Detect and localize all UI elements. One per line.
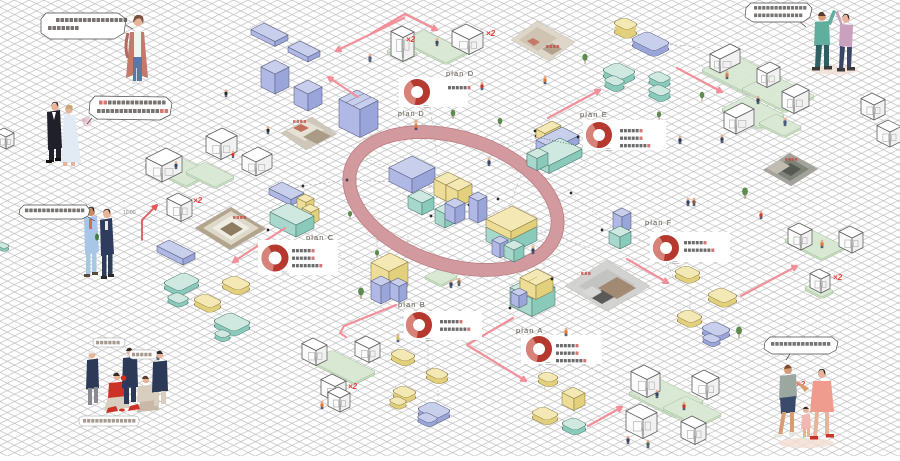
svg-text:×2: ×2 xyxy=(833,273,843,282)
svg-text:plan B: plan B xyxy=(398,300,426,309)
svg-text:×2: ×2 xyxy=(406,35,416,44)
svg-text:plan F: plan F xyxy=(645,218,672,227)
svg-text:plan D: plan D xyxy=(398,111,425,118)
svg-text:plan A: plan A xyxy=(516,326,543,335)
svg-text:×2: ×2 xyxy=(348,382,358,391)
svg-text:plan E: plan E xyxy=(580,110,608,119)
svg-text:plan D: plan D xyxy=(446,69,474,78)
svg-text:×2: ×2 xyxy=(193,196,203,205)
svg-text:10:00: 10:00 xyxy=(123,210,136,216)
svg-text:×2: ×2 xyxy=(486,29,496,38)
